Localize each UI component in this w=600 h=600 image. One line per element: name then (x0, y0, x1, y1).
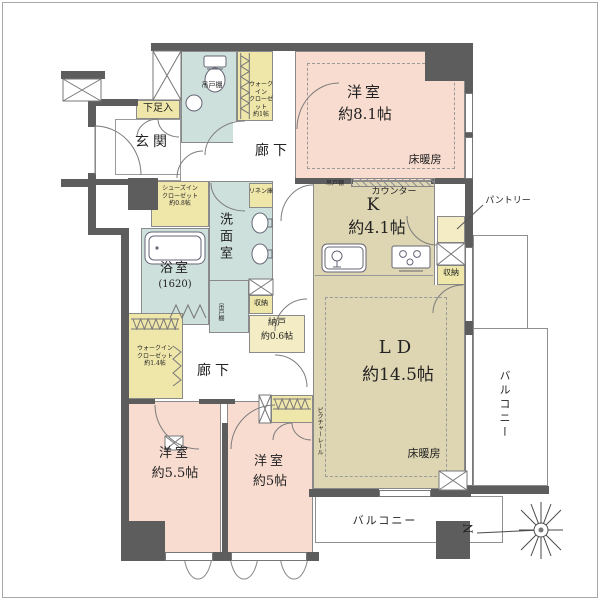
western1-floor-heating: 床暖房 (393, 153, 457, 167)
window-swing-1 (183, 561, 213, 580)
compass-north-label: N (462, 521, 477, 537)
storage-mid-label: 収納 (249, 299, 273, 308)
ld-name: LD (355, 337, 441, 360)
crossed-box-pantry-col (437, 243, 465, 265)
wash-basin-icon-1 (249, 210, 273, 237)
compass-icon (463, 497, 567, 567)
wall-fin-top (61, 71, 105, 79)
window-swing-3 (279, 561, 309, 580)
shoes-in-closet-label: シューズイン クローゼット 約0.8帖 (152, 185, 208, 208)
wall-counter-right (431, 178, 465, 184)
ld-size: 約14.5帖 (337, 365, 459, 386)
door-bathroom-folding (169, 303, 207, 319)
nando-size: 約0.6帖 (251, 332, 303, 343)
wall-balcony-right-bottom (461, 486, 549, 494)
kitchen-name: K (353, 195, 393, 216)
shoe-cabinet-label: 下足入 (136, 103, 180, 116)
door-western3 (231, 405, 275, 449)
corridor-upper-label: 廊下 (245, 143, 301, 161)
ld-floor-heating: 床暖房 (391, 447, 457, 461)
kitchen-counter-hatch (351, 178, 435, 187)
entrance-label: 玄関 (121, 134, 185, 152)
western2-name: 洋室 (135, 446, 215, 462)
western1-name: 洋室 (303, 83, 427, 102)
western3-name: 洋室 (235, 454, 305, 470)
wic-upper-label: ウォークイン クローゼット 約1帖 (247, 81, 275, 119)
door-w3-closet-left (273, 423, 292, 440)
wall-bottom-right-seg (307, 552, 319, 561)
wall-bedroom-top-a (127, 399, 155, 404)
window-ld-right (465, 247, 473, 486)
floor-plan: 玄関 下足入 シューズイン クローゼット 約0.8帖 吊戸棚 ウォークイン クロ… (0, 0, 600, 600)
window-ld-bottom (379, 490, 431, 497)
escape-hatch-box (63, 79, 101, 101)
door-toilet (205, 121, 245, 155)
stove-icon (391, 245, 431, 273)
crossed-box-mid (249, 279, 273, 295)
hanger-rail-w3-closet (273, 397, 311, 411)
wall-balcony-step (465, 321, 473, 335)
window-western1-a (465, 93, 473, 133)
hanger-rail-wic-lower (131, 317, 179, 331)
toilet-basin-icon (184, 93, 204, 113)
toilet-cupboard-label: 吊戸棚 (191, 81, 233, 90)
bathroom-name: 浴室 (147, 261, 203, 277)
wall-left-bedrooms (121, 399, 129, 523)
kitchen-cupboard-label: 吊戸棚 (319, 180, 351, 188)
door-kitchen (281, 185, 313, 221)
washroom-name: 洗面室 (212, 195, 232, 279)
western3-size: 約5帖 (235, 474, 305, 490)
window-western2-bottom (165, 552, 213, 561)
wash-basin-icon-2 (249, 241, 273, 268)
wall-fin-mid (61, 179, 89, 187)
wall-bottom-mid (213, 552, 231, 561)
wall-genkan-sic (95, 179, 155, 185)
wall-bedroom-divider (222, 423, 228, 553)
wall-ld-bottom-left (309, 489, 379, 497)
storage-right-label: 収納 (437, 268, 465, 278)
wic-lower-label: ウォークイン クローゼット 約1.4帖 (127, 345, 183, 368)
bathroom-size: (1620) (147, 279, 203, 292)
pantry-label: パントリー (475, 196, 541, 207)
plan-frame: 玄関 下足入 シューズイン クローゼット 約0.8帖 吊戸棚 ウォークイン クロ… (2, 2, 598, 598)
balcony-bottom-label: バルコニー (335, 514, 435, 528)
wall-bedroom-top-b (199, 399, 235, 404)
wall-bottom-left-block (121, 521, 165, 561)
washroom-cupboard-label: 吊戸棚 (212, 291, 224, 333)
balcony-right-label: バルコニー (491, 351, 511, 459)
kitchen-sink-icon (321, 243, 367, 273)
bathtub-icon (144, 231, 206, 265)
western2-size: 約5.5帖 (131, 466, 219, 482)
door-western2 (155, 405, 199, 449)
door-nando (275, 355, 307, 387)
door-shoes-in-closet (177, 151, 203, 178)
western1-size: 約8.1帖 (303, 105, 427, 124)
crossed-box-ld-corner (439, 471, 467, 490)
wall-left-mid (121, 228, 129, 399)
balcony-right-upper (473, 235, 528, 328)
wall-top (151, 43, 433, 51)
kitchen-size: 約4.1帖 (323, 218, 431, 238)
nando-name: 納戸 (253, 318, 301, 329)
door-ld-kitchen-col (433, 285, 463, 313)
linen-label: リネン庫 (249, 188, 273, 196)
window-swing-2 (229, 561, 259, 580)
window-western1-b (465, 137, 473, 179)
linen-box (249, 183, 273, 208)
ld-picture-rail-label: ピクチャーレール (311, 389, 323, 473)
kitchen-counter-line (315, 275, 433, 276)
door-w3-closet-right (292, 423, 311, 440)
window-western3-bottom (231, 552, 307, 561)
entry-closet-box (153, 51, 181, 100)
corridor-lower-label: 廊下 (187, 363, 243, 381)
